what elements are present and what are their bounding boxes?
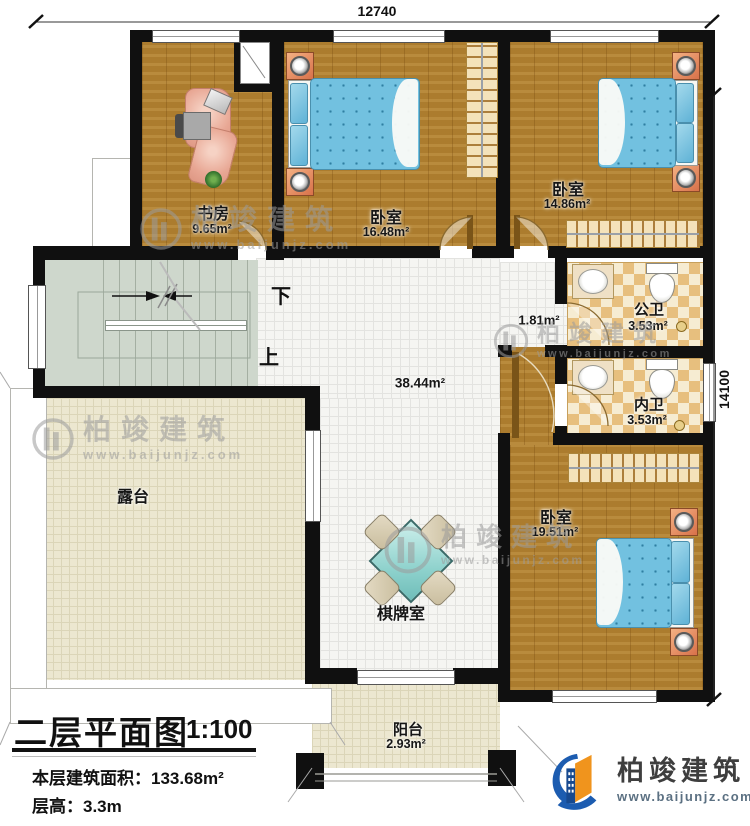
plan-title: 二层平面图 (14, 706, 189, 754)
door-leaf (512, 352, 519, 438)
bedroom2-area: 14.86m² (544, 197, 591, 211)
wall (553, 433, 703, 445)
window (550, 30, 659, 43)
company-logo: 柏竣建筑 www.baijunjz.com (548, 748, 750, 812)
company-name: 柏竣建筑 (617, 758, 750, 785)
ensuite-bath-area: 3.53m² (627, 413, 667, 427)
nightstand (286, 168, 314, 196)
bed-sheet (392, 79, 418, 167)
public-bath-area: 3.53m² (628, 319, 668, 333)
wall (472, 246, 498, 258)
wall (498, 440, 510, 695)
public-bath-label: 公卫 (634, 299, 664, 320)
floor-area-line: 本层建筑面积：133.68m² (32, 764, 224, 789)
floor-drain (676, 321, 687, 332)
pillow (290, 125, 308, 166)
terrace-parapet-left (10, 388, 47, 692)
wall (33, 386, 320, 398)
title-underline-thin (12, 756, 256, 757)
wall (498, 345, 512, 357)
wardrobe (568, 453, 700, 483)
stair-down-label: 下 (271, 280, 291, 309)
pillow (676, 123, 694, 163)
lamp-icon (676, 168, 696, 188)
lamp-icon (674, 512, 694, 532)
plan-scale: 1:100 (186, 714, 253, 745)
game-room-label: 棋牌室 (377, 600, 425, 624)
balcony-pillar (488, 750, 516, 786)
wall (284, 246, 440, 258)
bedroom1-area: 16.48m² (363, 225, 410, 239)
lamp-icon (290, 172, 310, 192)
lamp-icon (290, 56, 310, 76)
stair-up-label: 上 (259, 341, 279, 370)
floor-height-line: 层高：3.3m (32, 792, 122, 817)
wall (703, 420, 715, 702)
company-url: www.baijunjz.com (617, 790, 750, 803)
terrace-floor (45, 398, 305, 680)
sink-bowl (578, 365, 608, 390)
pillow (671, 583, 690, 625)
door-leaf (514, 215, 520, 249)
bedroom3-area: 19.51m² (532, 525, 579, 539)
balcony-area: 2.93m² (386, 737, 426, 751)
door-leaf (467, 215, 473, 249)
terrace-label: 露台 (117, 483, 149, 507)
corridor-area: 1.81m² (518, 313, 559, 328)
vestibule-floor (500, 347, 555, 445)
wall (555, 258, 567, 304)
lamp-icon (676, 56, 696, 76)
plant-icon (205, 171, 222, 188)
wall (453, 668, 510, 684)
nightstand (286, 52, 314, 80)
nightstand (670, 628, 698, 656)
sink (572, 360, 614, 395)
window (152, 30, 240, 43)
wall (498, 690, 552, 702)
wall (33, 367, 45, 388)
wall (305, 668, 357, 684)
wall (305, 398, 320, 430)
window (703, 363, 716, 422)
stair-rail (105, 320, 247, 331)
sink (572, 264, 614, 299)
wall (498, 433, 510, 445)
nightstand (672, 164, 700, 192)
window (28, 285, 46, 369)
pillow (676, 83, 694, 123)
wall (33, 248, 45, 285)
dimension-width: 12740 (347, 3, 407, 19)
wardrobe (466, 42, 498, 178)
sink-bowl (578, 269, 608, 294)
wall (496, 30, 510, 258)
wall (266, 246, 284, 260)
wardrobe (566, 220, 700, 248)
computer-monitor-icon (183, 112, 211, 140)
floor-plan: 12740 14100 书房 9.65m² 卧室 16.48m² 卧室 14.8… (0, 0, 750, 826)
window (552, 690, 657, 703)
dimension-height: 14100 (716, 370, 732, 409)
title-underline (12, 748, 256, 752)
sliding-door (357, 670, 455, 685)
company-logo-icon (548, 748, 608, 812)
window (305, 430, 321, 522)
wall (130, 30, 142, 258)
pillow (671, 541, 690, 583)
lamp-icon (674, 632, 694, 652)
wall (305, 520, 320, 668)
wall (555, 358, 567, 384)
wall (703, 30, 715, 363)
balcony-pillar (296, 753, 324, 789)
floor-drain (674, 420, 685, 431)
nightstand (672, 52, 700, 80)
window (333, 30, 445, 43)
study-area: 9.65m² (192, 222, 232, 236)
eave-band-left-upper (92, 158, 132, 248)
ensuite-bath-label: 内卫 (634, 394, 664, 415)
nightstand (670, 508, 698, 536)
hall-floor (256, 258, 500, 398)
hall-area: 38.44m² (395, 376, 445, 391)
wall (555, 346, 703, 358)
wall (655, 690, 715, 702)
study-label: 书房 (197, 200, 229, 224)
shaft-niche (240, 42, 270, 84)
stair-landing (45, 260, 103, 386)
pillow (290, 83, 308, 124)
wall (33, 246, 238, 260)
